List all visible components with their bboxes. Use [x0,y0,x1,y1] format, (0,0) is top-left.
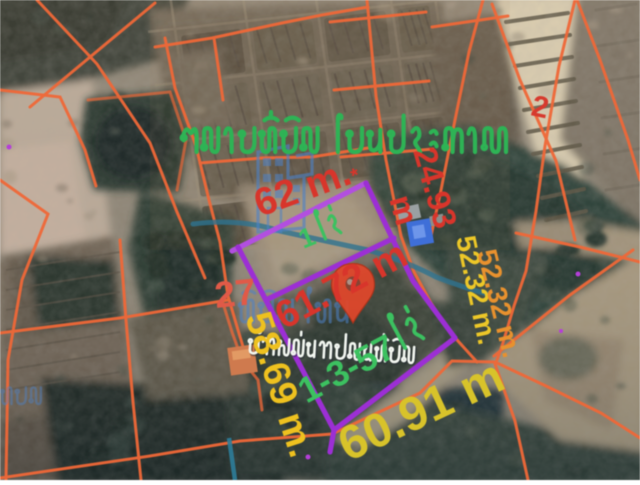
svg-text:27: 27 [213,271,258,316]
